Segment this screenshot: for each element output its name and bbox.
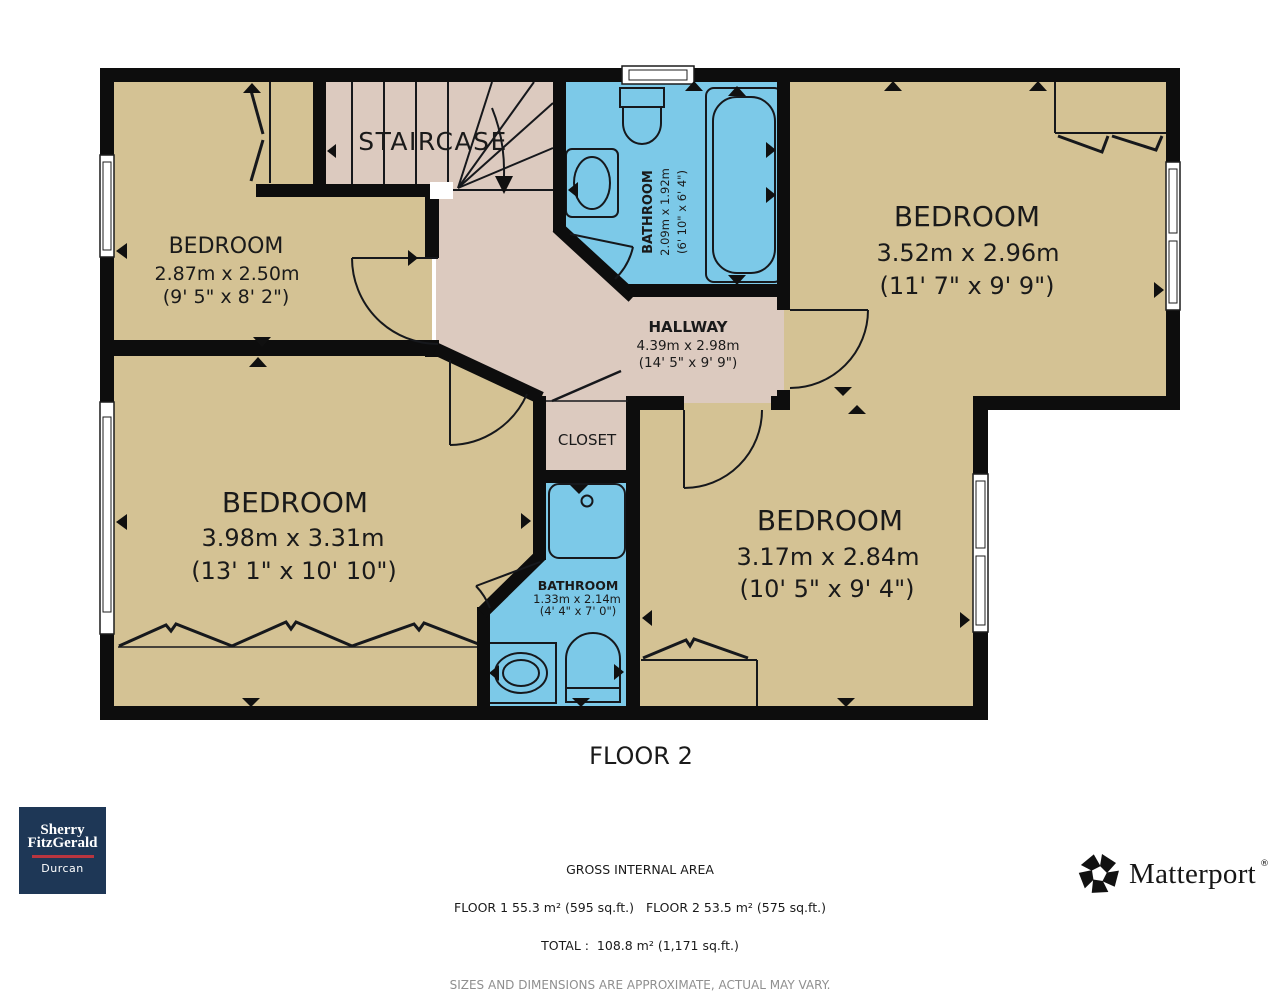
matterport-wordmark: Matterport [1129,858,1256,891]
agency-office-name: Durcan [19,862,106,875]
svg-text:BEDROOM: BEDROOM [757,504,903,537]
total-area-line: TOTAL : 108.8 m² (1,171 sq.ft.) [0,940,1280,953]
svg-text:(9' 5" x 8' 2"): (9' 5" x 8' 2") [163,286,290,308]
svg-text:3.98m x 3.31m: 3.98m x 3.31m [201,524,384,552]
window-right-top [1166,162,1180,310]
svg-text:BEDROOM: BEDROOM [222,486,368,519]
svg-text:BEDROOM: BEDROOM [894,200,1040,233]
floor-areas-line: FLOOR 1 55.3 m² (595 sq.ft.) FLOOR 2 53.… [0,902,1280,915]
svg-text:(11' 7" x 9' 9"): (11' 7" x 9' 9") [879,272,1054,300]
agency-accent-rule [32,855,94,858]
svg-text:(13' 1" x 10' 10"): (13' 1" x 10' 10") [191,557,397,585]
label-bedroom-top-left: BEDROOM 2.87m x 2.50m (9' 5" x 8' 2") [155,234,300,308]
svg-text:2.09m x 1.92m: 2.09m x 1.92m [658,168,672,256]
label-closet: CLOSET [558,431,617,449]
floor-plan-canvas: BEDROOM 2.87m x 2.50m (9' 5" x 8' 2") ST… [0,0,1280,905]
svg-text:CLOSET: CLOSET [558,431,617,449]
svg-text:(10' 5" x 9' 4"): (10' 5" x 9' 4") [739,575,914,603]
agency-logo: Sherry FitzGerald Durcan [19,807,106,894]
svg-text:BATHROOM: BATHROOM [538,578,619,593]
registered-trademark-symbol: ® [1260,859,1269,869]
label-bedroom-top-right: BEDROOM 3.52m x 2.96m (11' 7" x 9' 9") [876,200,1059,300]
window-left-bottom [100,402,114,634]
label-bathroom-bottom: BATHROOM 1.33m x 2.14m (4' 4" x 7' 0") [533,578,621,618]
svg-text:(6' 10" x 6' 4"): (6' 10" x 6' 4") [675,170,689,254]
label-bedroom-bottom-left: BEDROOM 3.98m x 3.31m (13' 1" x 10' 10") [191,486,397,585]
svg-text:(14' 5" x 9' 9"): (14' 5" x 9' 9") [639,355,737,371]
svg-text:BEDROOM: BEDROOM [169,234,284,259]
label-bedroom-bottom-right: BEDROOM 3.17m x 2.84m (10' 5" x 9' 4") [736,504,919,603]
size-disclaimer: SIZES AND DIMENSIONS ARE APPROXIMATE, AC… [0,979,1280,992]
svg-text:(4' 4" x 7' 0"): (4' 4" x 7' 0") [540,604,617,618]
svg-text:HALLWAY: HALLWAY [648,318,728,336]
svg-text:BATHROOM: BATHROOM [641,170,656,254]
stair-opening [430,182,453,199]
svg-text:3.17m x 2.84m: 3.17m x 2.84m [736,543,919,571]
label-bathroom-top: BATHROOM 2.09m x 1.92m (6' 10" x 6' 4") [641,168,689,256]
svg-text:STAIRCASE: STAIRCASE [358,127,508,156]
svg-text:2.87m x 2.50m: 2.87m x 2.50m [155,263,300,285]
matterport-pinwheel-icon [1078,853,1120,895]
matterport-logo: Matterport ® [1078,851,1269,897]
svg-text:4.39m x 2.98m: 4.39m x 2.98m [637,338,740,354]
svg-text:3.52m x 2.96m: 3.52m x 2.96m [876,239,1059,267]
floor-title: FLOOR 2 [589,742,693,770]
window-right-bottom [973,474,988,632]
window-top [622,66,694,84]
label-hallway: HALLWAY 4.39m x 2.98m (14' 5" x 9' 9") [637,318,740,371]
agency-name-line2: FitzGerald [19,837,106,850]
label-staircase: STAIRCASE [358,127,508,156]
window-left-top [100,155,114,257]
